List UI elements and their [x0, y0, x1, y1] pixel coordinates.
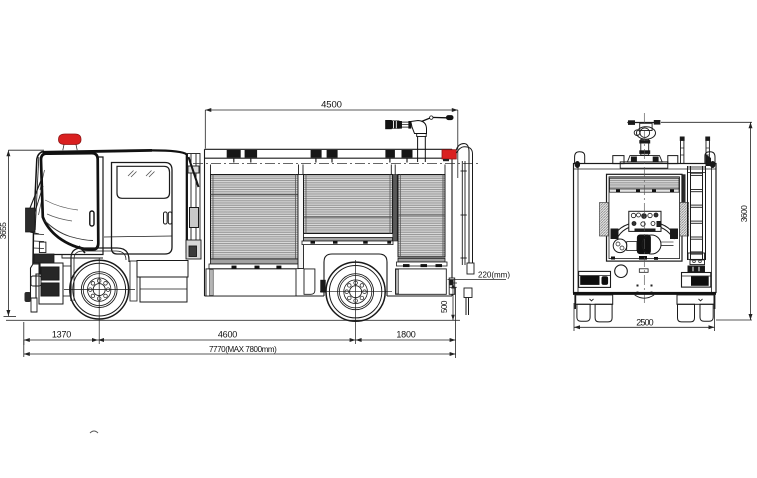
svg-text:2500: 2500: [636, 317, 653, 327]
svg-text:1370: 1370: [52, 330, 71, 340]
svg-text:3655: 3655: [0, 222, 8, 239]
svg-text:7770(MAX 7800mm): 7770(MAX 7800mm): [209, 345, 277, 354]
svg-text:3600: 3600: [739, 205, 749, 222]
svg-text:500: 500: [440, 300, 449, 313]
svg-text:4600: 4600: [218, 330, 237, 340]
svg-text:1800: 1800: [396, 330, 415, 340]
svg-text:4500: 4500: [321, 100, 342, 111]
svg-text:220(mm): 220(mm): [478, 271, 510, 280]
